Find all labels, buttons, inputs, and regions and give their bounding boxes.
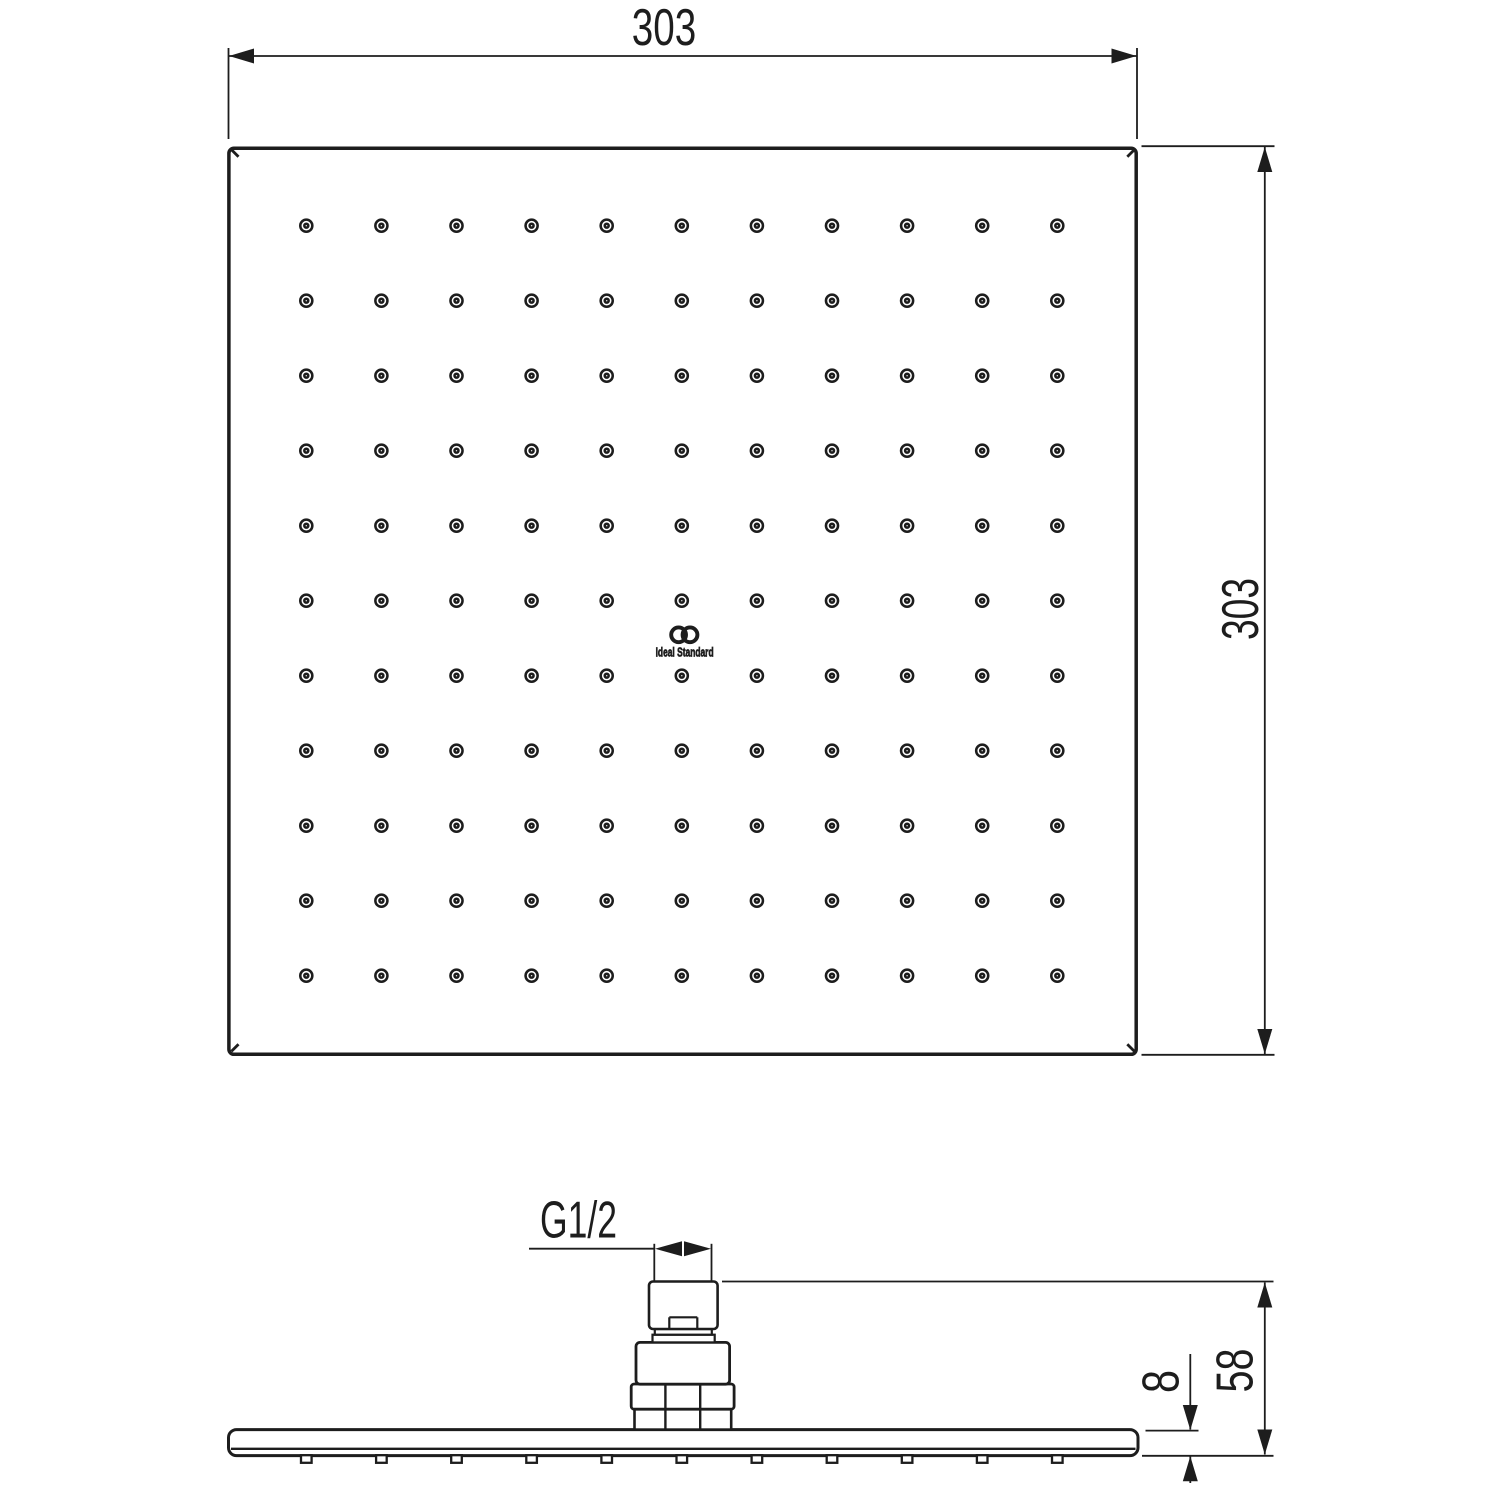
svg-text:303: 303	[1212, 578, 1270, 640]
svg-text:Ideal Standard: Ideal Standard	[656, 646, 714, 660]
svg-text:303: 303	[632, 0, 697, 57]
svg-text:58: 58	[1207, 1349, 1265, 1393]
svg-text:8: 8	[1133, 1370, 1191, 1393]
svg-text:G1/2: G1/2	[540, 1192, 617, 1250]
